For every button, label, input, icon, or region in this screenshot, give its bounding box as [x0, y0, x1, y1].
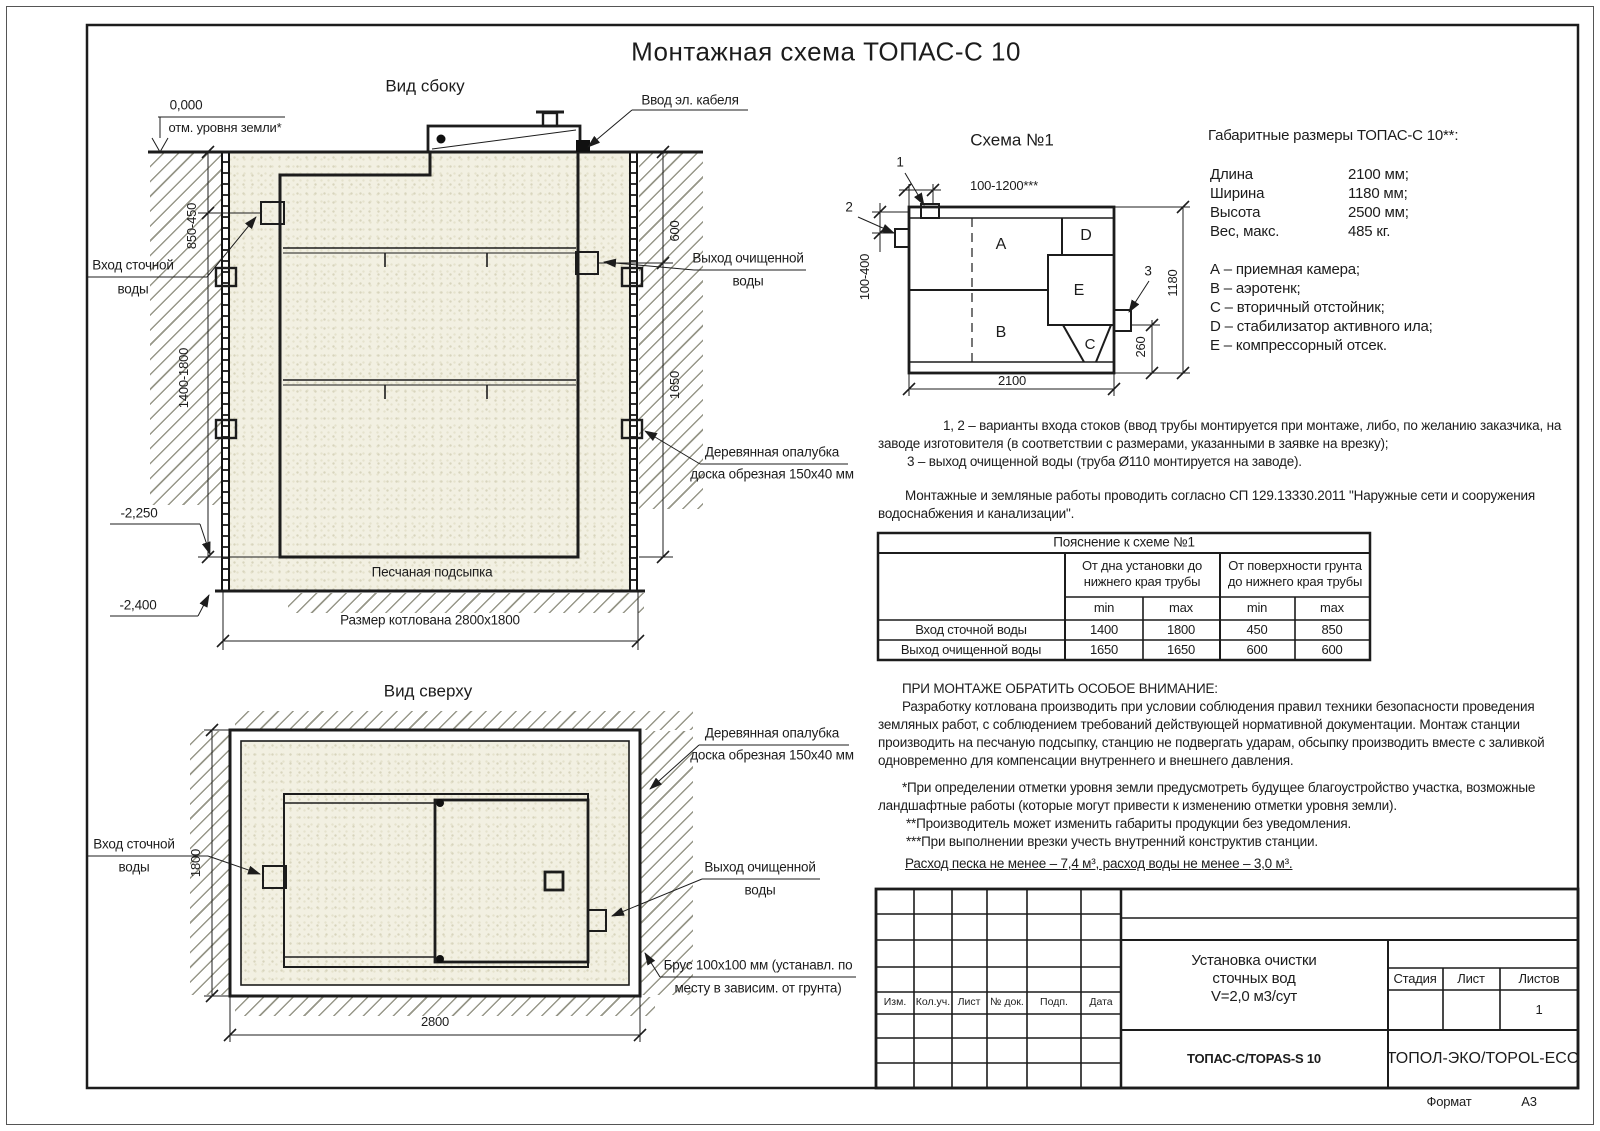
earth-hatch-bottom	[288, 593, 644, 613]
stamp-col-data: Дата	[1089, 997, 1112, 1009]
stamp-company: ТОПОЛ-ЭКО/TOPOL-ECO	[1387, 1050, 1580, 1068]
top-view-title: Вид сверху	[384, 683, 473, 702]
tv-dim-1800: 1800	[189, 849, 203, 877]
spec-value: 2100 мм;	[1348, 167, 1409, 184]
spec-value: 485 кг.	[1348, 224, 1390, 241]
table-group2: От поверхности грунта	[1228, 559, 1362, 573]
doc-title-2: сточных вод	[1212, 971, 1295, 988]
tv-beam-label-1: Брус 100x100 мм (устанавл. по	[664, 959, 853, 974]
stamp-col-podp: Подп.	[1040, 997, 1068, 1009]
table-row-label: Вход сточной воды	[915, 623, 1027, 637]
formwork-left	[221, 152, 230, 590]
table-group1: От дна установки до	[1082, 559, 1202, 573]
table-cell: 600	[1246, 643, 1267, 657]
note-line: заводе изготовителя (в соответствии с ра…	[878, 437, 1388, 452]
inlet-label-2: воды	[117, 283, 148, 298]
compartment-a: А	[996, 236, 1007, 254]
schema-marker-3: 3	[1144, 265, 1151, 280]
sand-backfill-top	[241, 741, 629, 985]
dim-850-450: 850-450	[185, 203, 199, 249]
note-line: 3 – выход очищенной воды (труба Ø110 мон…	[907, 455, 1302, 470]
sand-label: Песчаная подсыпка	[372, 566, 493, 581]
attention-heading: ПРИ МОНТАЖЕ ОБРАТИТЬ ОСОБОЕ ВНИМАНИЕ:	[902, 682, 1218, 697]
spec-label: Высота	[1210, 205, 1260, 222]
tv-formwork-label-2: доска обрезная 150x40 мм	[690, 749, 854, 764]
table-cell: 450	[1246, 623, 1267, 637]
tv-hatch-top	[235, 711, 693, 730]
pit-size-label: Размер котлована 2800x1800	[340, 614, 520, 629]
schema-dim-left: 100-400	[858, 254, 872, 300]
elev-2400: -2,400	[119, 599, 156, 614]
dim-1400-1800: 1400-1800	[177, 348, 191, 408]
note-line: Монтажные и земляные работы проводить со…	[905, 489, 1535, 504]
attention-line: одновременно для компенсации внутреннего…	[878, 754, 1293, 769]
stamp-sheet: Лист	[1457, 972, 1484, 986]
formwork-label-1: Деревянная опалубка	[705, 446, 839, 461]
table-max: max	[1320, 601, 1344, 615]
tv-outlet-label-2: воды	[744, 884, 775, 899]
table-cell: 600	[1321, 643, 1342, 657]
spec-value: 2500 мм;	[1348, 205, 1409, 222]
doc-title-1: Установка очистки	[1191, 953, 1316, 970]
outlet-label-2: воды	[732, 275, 763, 290]
table-group1: нижнего края трубы	[1084, 575, 1201, 589]
tv-dim-2800: 2800	[421, 1015, 449, 1029]
schema-title: Схема №1	[970, 132, 1054, 151]
formwork-label-2: доска обрезная 150x40 мм	[690, 468, 854, 483]
legend-item: С – вторичный отстойник;	[1210, 300, 1385, 317]
table-min: min	[1094, 601, 1114, 615]
legend-item: В – аэротенк;	[1210, 281, 1301, 298]
formwork-right	[629, 152, 638, 590]
compartment-d: D	[1080, 227, 1092, 245]
spec-label: Вес, макс.	[1210, 224, 1279, 241]
spec-label: Ширина	[1210, 186, 1264, 203]
stamp-col-list: Лист	[958, 997, 981, 1009]
side-view-title: Вид сбоку	[385, 78, 464, 97]
table-cell: 1400	[1090, 623, 1118, 637]
cable-label: Ввод эл. кабеля	[641, 94, 738, 109]
table-min: min	[1247, 601, 1267, 615]
table-cell: 1650	[1090, 643, 1118, 657]
schema-dim-top: 100-1200***	[970, 179, 1038, 193]
tv-formwork-label-1: Деревянная опалубка	[705, 727, 839, 742]
footnote-line: ландшафтные работы (которые могут привес…	[878, 799, 1397, 814]
attention-line: производить на песчаную подсыпку, станци…	[878, 736, 1545, 751]
consumption-note: Расход песка не менее – 7,4 м³, расход в…	[905, 857, 1292, 872]
stamp-col-dok: № док.	[990, 997, 1024, 1009]
table-row-label: Выход очищенной воды	[901, 643, 1041, 657]
table-cell: 1650	[1167, 643, 1195, 657]
sand-backfill-side	[230, 153, 630, 590]
stamp-col-koluch: Кол.уч.	[916, 997, 950, 1009]
compartment-b: В	[996, 324, 1007, 342]
table-group2: до нижнего края трубы	[1228, 575, 1362, 589]
format-value: А3	[1521, 1095, 1537, 1109]
elev-zero: 0,000	[170, 99, 203, 114]
drawing-sheet: Монтажная схема ТОПАС-С 10 Вид сбоку 0,0…	[0, 0, 1600, 1131]
tv-outlet-label-1: Выход очищенной	[704, 861, 815, 876]
inlet-label-1: Вход сточной	[92, 259, 173, 274]
schema-dim-right: 1180	[1166, 269, 1180, 296]
elev-zero-note: отм. уровня земли*	[169, 121, 282, 135]
spec-value: 1180 мм;	[1348, 186, 1408, 203]
schema-dim-bottom: 2100	[998, 374, 1026, 388]
outlet-label-1: Выход очищенной	[692, 252, 803, 267]
stamp-stage: Стадия	[1393, 972, 1436, 986]
table-cell: 850	[1321, 623, 1342, 637]
table-cell: 1800	[1167, 623, 1195, 637]
footnote-line: *При определении отметки уровня земли пр…	[902, 781, 1535, 796]
note-line: водоснабжения и канализации".	[878, 507, 1074, 522]
tv-inlet-label-2: воды	[118, 861, 149, 876]
stamp-sheets: Листов	[1518, 972, 1559, 986]
dim-1650: 1650	[668, 371, 682, 399]
page-title: Монтажная схема ТОПАС-С 10	[631, 38, 1021, 67]
tv-hatch-right	[641, 731, 693, 995]
compartment-e: Е	[1074, 282, 1085, 300]
legend-item: Е – компрессорный отсек.	[1210, 338, 1387, 355]
table-title: Пояснение к схеме №1	[1053, 536, 1195, 551]
tv-beam-label-2: месту в зависим. от грунта)	[674, 982, 841, 997]
attention-line: земляных работ, с соблюдением требований…	[878, 718, 1520, 733]
stamp-col-izm: Изм.	[884, 997, 907, 1009]
spec-label: Длина	[1210, 167, 1253, 184]
table-max: max	[1169, 601, 1193, 615]
schema-dim-260: 260	[1134, 336, 1148, 357]
doc-title-3: V=2,0 м3/сут	[1211, 989, 1297, 1006]
compartment-c: С	[1085, 337, 1096, 354]
elev-2250: -2,250	[120, 507, 157, 522]
earth-hatch-right	[639, 153, 703, 509]
schema-marker-2: 2	[845, 201, 852, 216]
schema-marker-1: 1	[896, 156, 903, 171]
stamp-sheets-value: 1	[1535, 1003, 1542, 1017]
dim-600: 600	[668, 220, 682, 241]
format-label: Формат	[1427, 1095, 1472, 1109]
specs-heading: Габаритные размеры ТОПАС-С 10**:	[1208, 128, 1458, 145]
footnote-line: ***При выполнении врезки учесть внутренн…	[906, 835, 1318, 850]
legend-item: D – стабилизатор активного ила;	[1210, 319, 1433, 336]
legend-item: А – приемная камера;	[1210, 262, 1360, 279]
note-line: 1, 2 – варианты входа стоков (ввод трубы…	[943, 419, 1561, 434]
stamp-model: ТОПАС-С/TOPAS-S 10	[1187, 1052, 1321, 1066]
footnote-line: **Производитель может изменить габариты …	[906, 817, 1351, 832]
tv-inlet-label-1: Вход сточной	[93, 838, 174, 853]
attention-line: Разработку котлована производить при усл…	[902, 700, 1535, 715]
